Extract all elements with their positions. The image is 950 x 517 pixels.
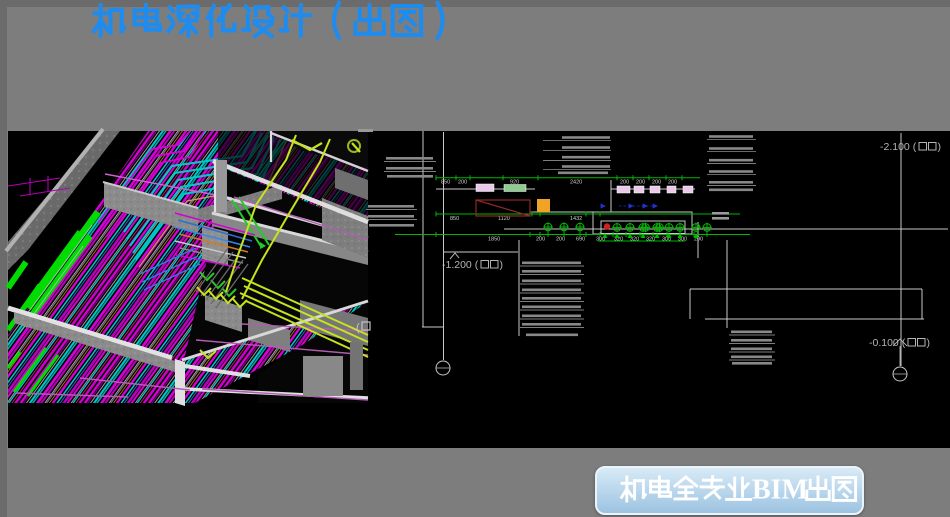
svg-text:1850: 1850	[488, 237, 500, 243]
svg-text:BIM: BIM	[752, 475, 808, 506]
svg-text:200: 200	[620, 180, 629, 186]
svg-text:200: 200	[536, 237, 545, 243]
svg-text:2420: 2420	[570, 180, 582, 186]
svg-text:(: (	[356, 322, 360, 334]
svg-text:200: 200	[636, 180, 645, 186]
svg-text:200: 200	[668, 180, 677, 186]
svg-text:): )	[927, 337, 931, 349]
svg-text:-2.100 (: -2.100 (	[880, 141, 917, 153]
svg-text:200: 200	[556, 237, 565, 243]
svg-text:690: 690	[576, 237, 585, 243]
svg-text:): )	[938, 141, 942, 153]
svg-text:): )	[500, 259, 504, 271]
svg-text:200: 200	[458, 180, 467, 186]
svg-text:320: 320	[646, 237, 655, 243]
svg-text:850: 850	[441, 180, 450, 186]
svg-text:850: 850	[450, 216, 459, 222]
svg-text:1120: 1120	[498, 216, 510, 222]
svg-text:-1.200 (: -1.200 (	[442, 259, 479, 271]
svg-text:1432: 1432	[570, 216, 582, 222]
svg-text:200: 200	[652, 180, 661, 186]
